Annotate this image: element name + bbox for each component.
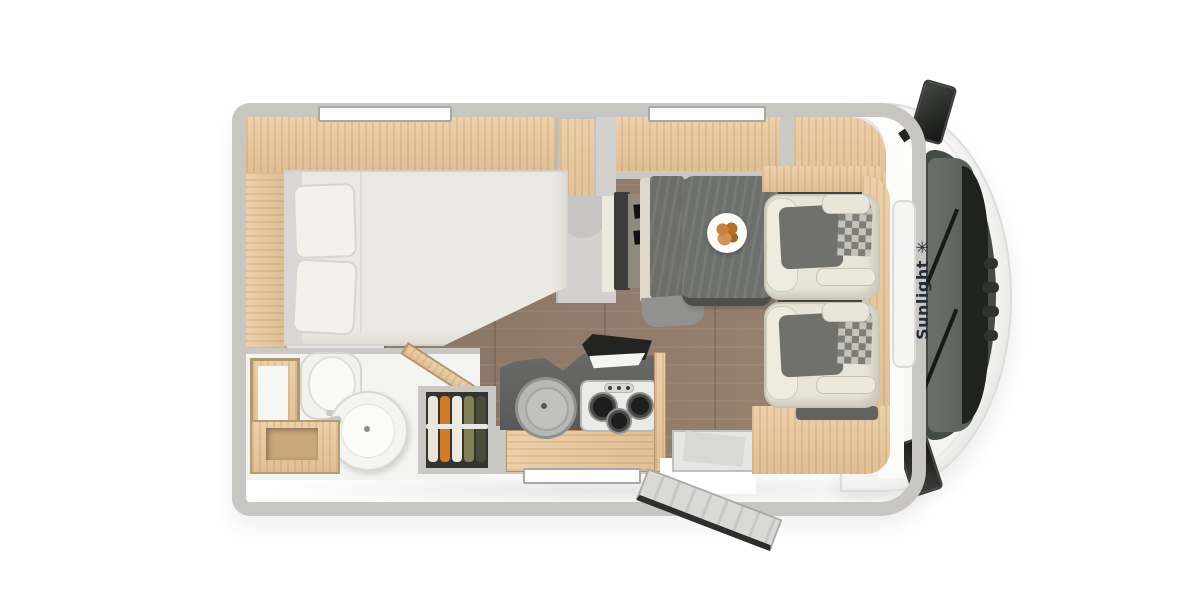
sunlight-logo-icon: ✳: [913, 240, 932, 254]
hanging-garment: [440, 396, 450, 462]
cab-bench-back: [796, 406, 878, 420]
bench-seat: [650, 176, 684, 298]
kitchen-end-post: [654, 352, 666, 472]
brand-label: Sunlight ✳: [913, 215, 935, 365]
pillow: [293, 183, 358, 259]
bed-side-shelf: [246, 173, 287, 349]
cab-seat: [764, 194, 876, 296]
hanging-garment: [452, 396, 462, 462]
brand-text: Sunlight: [913, 260, 932, 340]
hob-knob-dot: [617, 386, 621, 390]
hob-knob-dot: [608, 386, 612, 390]
kitchen-sink-drain: [541, 403, 547, 409]
seat-armrest: [816, 376, 876, 394]
grille-slat: [982, 306, 999, 317]
mattress-seam: [360, 172, 362, 332]
hob-knob-dot: [626, 386, 630, 390]
seat-center-pad: [778, 204, 843, 269]
shower-panel-glass: [258, 366, 288, 422]
overhead-cabinet-dinette: [614, 117, 780, 179]
cab-seat: [764, 302, 876, 404]
food-buns: [712, 218, 742, 248]
seat-headrest: [822, 302, 870, 322]
tall-unit-side: [602, 196, 614, 292]
kitchen-bottom-window: [523, 468, 641, 484]
hanging-garment: [476, 396, 486, 462]
hanging-garment: [428, 396, 438, 462]
grille-slat: [984, 258, 998, 269]
entry-step-slab: [683, 431, 746, 467]
floorplan-canvas: Sunlight ✳: [0, 0, 1200, 600]
rear-top-window: [318, 106, 452, 122]
grille-slat: [984, 330, 998, 341]
kitchen-sink-bowl: [525, 387, 569, 431]
dinette-top-window: [648, 106, 766, 122]
washbasin-drain: [364, 426, 370, 432]
clothes-rail: [426, 424, 488, 429]
seat-headrest: [822, 194, 870, 214]
wiper-cowl: [962, 166, 988, 424]
vanity-recess: [266, 428, 318, 460]
pillow: [292, 258, 358, 335]
hanging-garment: [464, 396, 474, 462]
grille-slat: [982, 282, 999, 293]
hob-burner: [608, 410, 630, 432]
kitchen-cabinet-front: [506, 430, 656, 472]
hob-burner: [628, 394, 652, 418]
seat-armrest: [816, 268, 876, 286]
seat-center-pad: [778, 312, 843, 377]
